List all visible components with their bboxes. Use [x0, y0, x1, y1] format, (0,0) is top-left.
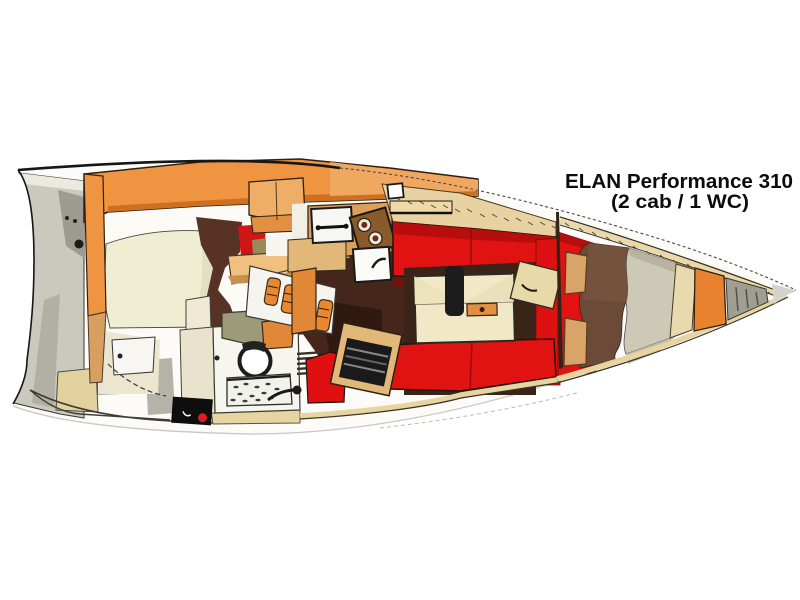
svg-text:ELAN Performance 310: ELAN Performance 310 — [565, 170, 793, 193]
svg-text:(2 cab / 1 WC): (2 cab / 1 WC) — [611, 192, 749, 213]
